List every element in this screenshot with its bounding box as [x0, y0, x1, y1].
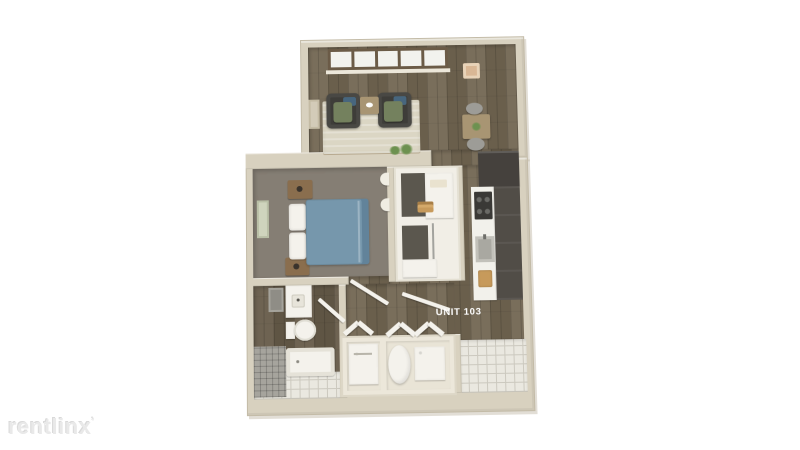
unit-label: UNIT 103 [436, 306, 517, 318]
floor-plan: UNIT 103 [237, 34, 540, 420]
towel-stack-icon [417, 201, 433, 212]
entry-tile-floor [459, 339, 528, 393]
faucet-icon [297, 298, 300, 301]
lamp-icon [297, 186, 303, 192]
lamp-icon [293, 263, 299, 269]
watermark-text: rentlinx [8, 414, 91, 439]
closet-builtin [394, 166, 461, 282]
washer-lid-slot-icon [354, 353, 372, 355]
bifold-panel-icon [357, 320, 374, 335]
closet-knob-top [380, 173, 389, 186]
closet-cabinet [403, 259, 437, 278]
bed [306, 199, 370, 266]
refrigerator [478, 151, 520, 187]
vanity-mirror [268, 288, 283, 312]
armchair-left [326, 93, 360, 129]
drain-icon [296, 360, 299, 363]
bifold-panel-icon [427, 321, 444, 336]
seat-cushion-icon [384, 101, 403, 122]
closet-knob-bottom [380, 198, 389, 211]
cutting-board-icon [478, 270, 492, 287]
armchair-right [378, 92, 412, 128]
tray-icon [366, 103, 373, 108]
table-plant-icon [471, 122, 481, 131]
bifold-door-3 [414, 318, 445, 341]
dining-table [462, 114, 490, 139]
blanket-fold-icon [358, 201, 361, 263]
range-stove [474, 192, 493, 220]
bathroom-vanity [285, 285, 311, 318]
shower-tile-surround [254, 346, 287, 397]
window-row [328, 47, 449, 70]
linens-icon [430, 180, 447, 188]
window-pane [424, 50, 445, 66]
watermark-mark-icon: ʼ [91, 417, 95, 429]
water-heater [388, 345, 411, 384]
window-pane [401, 50, 422, 66]
storage-box [414, 346, 445, 380]
nightstand-top [288, 180, 313, 199]
washer [349, 344, 379, 385]
laundry-closet [340, 334, 456, 397]
bifold-door-2 [386, 319, 417, 342]
kitchen-sink [475, 236, 495, 262]
faucet-icon [483, 234, 486, 239]
rentlinx-watermark: rentlinxʼ [8, 414, 95, 440]
living-wall-art [309, 100, 320, 129]
side-table [360, 97, 379, 115]
window-pane [354, 51, 375, 67]
window-pane [331, 52, 352, 68]
page: { "watermark": { "text": "rentlinx", "ma… [0, 0, 800, 450]
bed-pillow-bottom [289, 232, 306, 259]
kitchen-cabinets [494, 186, 523, 300]
bifold-door-1 [343, 317, 374, 340]
seat-cushion-icon [333, 102, 352, 123]
ceiling-light [463, 63, 480, 79]
bed-pillow-top [289, 204, 306, 231]
window-pane [378, 51, 399, 67]
bedroom-wall-art [257, 200, 269, 238]
bathtub [286, 347, 335, 376]
